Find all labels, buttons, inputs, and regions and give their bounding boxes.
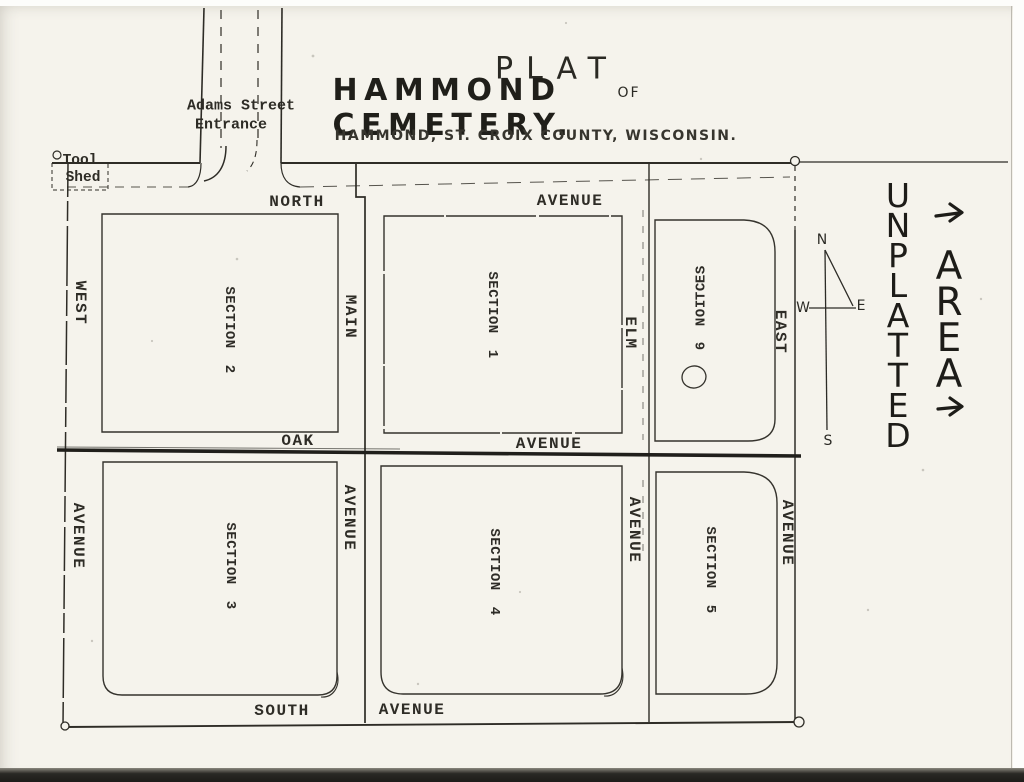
street-label-elm-avenue: AVENUE <box>625 497 643 564</box>
south-boundary-line <box>65 722 799 727</box>
compass-west-label: W <box>796 300 810 316</box>
tool-shed-label-line2: Shed <box>66 170 101 186</box>
section-6-outline <box>655 220 775 441</box>
tool-shed-label-line1: Tool <box>63 153 98 169</box>
corner-marker-southeast <box>794 717 804 727</box>
street-label-east: EAST <box>771 310 789 354</box>
unplatted-label: UNPLATTED <box>885 181 910 451</box>
oak-avenue-road <box>57 447 801 456</box>
section-2-outline <box>102 214 338 432</box>
section-1-outline <box>384 216 622 433</box>
compass-south-label: S <box>824 433 833 449</box>
street-label-north-avenue: AVENUE <box>537 192 604 210</box>
street-label-south-avenue: AVENUE <box>379 701 446 719</box>
section-6-circle <box>680 364 708 391</box>
scan-bottom-bar <box>0 768 1024 782</box>
street-label-west-avenue: AVENUE <box>69 503 87 570</box>
street-label-north: NORTH <box>269 193 325 211</box>
main-avenue-line <box>356 163 365 723</box>
section-6-label: SECTION 6 <box>693 266 711 351</box>
street-label-oak: OAK <box>281 432 314 450</box>
entrance-label-line2: Entrance <box>195 117 267 134</box>
section-4-label: SECTION4 <box>486 528 502 615</box>
street-label-elm: ELM <box>621 316 639 349</box>
unplatted-arrow-bottom-icon <box>938 398 962 415</box>
compass-north-label: N <box>817 232 827 248</box>
corner-marker-southwest <box>61 722 69 730</box>
street-label-east-avenue: AVENUE <box>778 500 796 567</box>
street-label-main-avenue: AVENUE <box>340 485 358 552</box>
corner-markers <box>61 157 804 731</box>
plat-map-page: PLAT OF HAMMOND CEMETERY. HAMMOND, ST. C… <box>0 0 1024 782</box>
elm-avenue-line <box>643 163 649 722</box>
area-label: AREA <box>935 250 962 394</box>
street-label-south: SOUTH <box>254 702 310 720</box>
street-label-oak-avenue: AVENUE <box>516 435 583 453</box>
west-boundary-line <box>63 163 68 726</box>
page-title-subtitle: HAMMOND, ST. CROIX COUNTY, WISCONSIN. <box>335 128 738 144</box>
unplatted-arrow-top-icon <box>936 204 962 221</box>
street-label-main: MAIN <box>341 295 359 339</box>
compass-icon <box>809 250 856 430</box>
entrance-road <box>200 8 282 181</box>
compass-east-label: E <box>857 298 866 314</box>
north-boundary-line <box>52 162 1008 187</box>
entrance-label-line1: Adams Street <box>187 98 295 115</box>
section-3-outline <box>103 462 337 695</box>
street-label-west: WEST <box>71 281 89 325</box>
section-5-label: SECTION5 <box>702 526 718 613</box>
section-1-label: SECTION1 <box>484 271 500 358</box>
section-3-label: SECTION3 <box>222 522 238 609</box>
section-2-label: SECTION2 <box>221 286 237 373</box>
corner-marker-northeast <box>791 157 800 166</box>
